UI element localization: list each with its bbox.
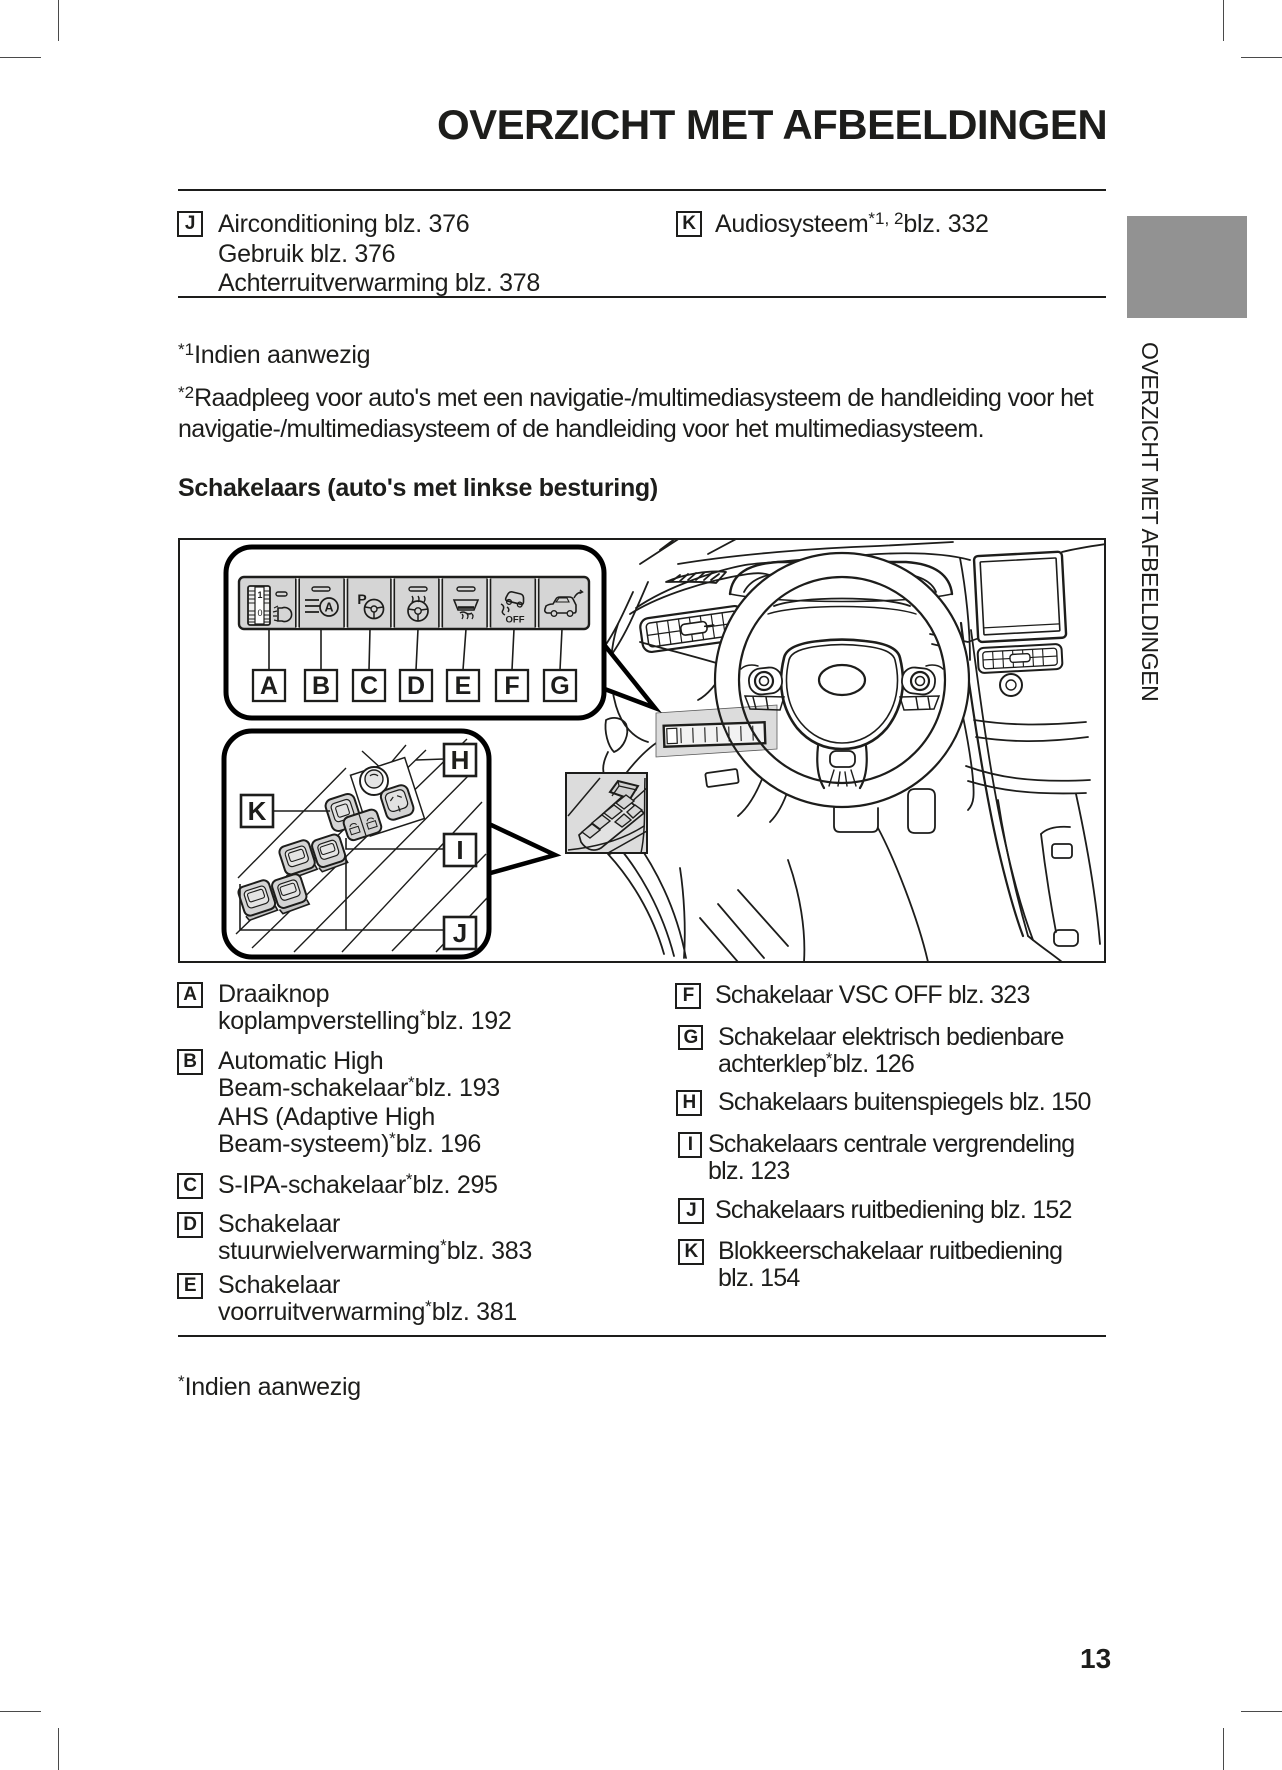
svg-text:1: 1	[257, 590, 262, 600]
svg-text:0: 0	[257, 608, 262, 618]
svg-text:A: A	[260, 672, 278, 700]
svg-text:J: J	[453, 918, 467, 948]
svg-text:H: H	[451, 745, 470, 775]
svg-text:E: E	[455, 672, 472, 700]
svg-text:G: G	[550, 672, 569, 700]
svg-text:I: I	[456, 835, 463, 865]
svg-text:A: A	[324, 601, 333, 615]
svg-text:C: C	[360, 672, 378, 700]
svg-text:D: D	[407, 672, 425, 700]
svg-text:OFF: OFF	[506, 615, 525, 626]
svg-text:B: B	[312, 672, 330, 700]
svg-text:K: K	[248, 796, 267, 826]
svg-text:F: F	[504, 672, 519, 700]
